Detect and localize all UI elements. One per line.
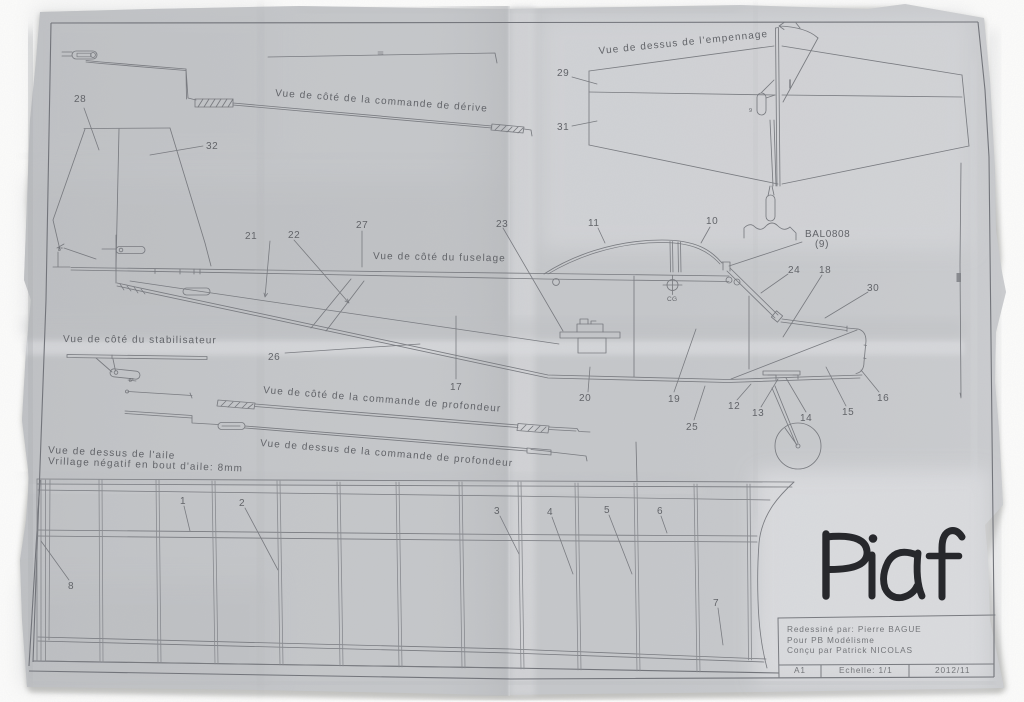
svg-text:29: 29 [557,68,569,79]
svg-text:31: 31 [557,122,569,133]
svg-text:A1: A1 [794,665,806,675]
svg-text:20: 20 [579,393,591,404]
svg-text:18: 18 [819,265,831,276]
svg-text:CG: CG [667,296,677,303]
svg-text:8: 8 [68,581,74,592]
svg-text:25: 25 [686,422,698,433]
svg-text:12: 12 [728,401,740,412]
svg-text:9: 9 [749,108,752,114]
svg-text:Redessiné par: Pierre BAGUE: Redessiné par: Pierre BAGUE [787,624,922,634]
svg-text:26: 26 [268,352,280,363]
svg-text:22: 22 [288,230,300,241]
svg-text:Vue de côté du fuselage: Vue de côté du fuselage [373,251,506,264]
svg-text:2012/11: 2012/11 [935,665,970,675]
svg-text:Pour PB Modélisme: Pour PB Modélisme [787,635,875,645]
svg-text:3: 3 [494,506,500,517]
svg-text:14: 14 [800,413,812,424]
svg-text:1: 1 [180,496,186,507]
svg-text:17: 17 [450,382,462,393]
svg-text:Echelle: 1/1: Echelle: 1/1 [839,665,893,675]
svg-text:11: 11 [588,218,600,229]
svg-text:32: 32 [206,141,218,152]
svg-text:5: 5 [604,505,610,516]
svg-text:4: 4 [547,507,553,518]
svg-text:16: 16 [877,393,889,404]
svg-text:15: 15 [842,407,854,418]
svg-text:28: 28 [74,94,86,105]
svg-text:24: 24 [788,265,800,276]
svg-text:30: 30 [867,283,879,294]
svg-text:21: 21 [245,231,257,242]
svg-text:8°: 8° [58,247,63,253]
svg-text:10: 10 [706,216,718,227]
svg-text:2: 2 [239,498,245,509]
svg-text:13: 13 [752,408,764,419]
svg-text:19: 19 [668,394,680,405]
svg-text:8°: 8° [129,378,134,384]
svg-text:(9): (9) [815,239,829,250]
svg-text:7: 7 [713,598,719,609]
svg-text:27: 27 [356,220,368,231]
svg-text:Conçu par Patrick NICOLAS: Conçu par Patrick NICOLAS [787,645,913,655]
svg-text:6: 6 [657,506,663,517]
svg-text:23: 23 [496,219,508,230]
svg-text:Vue de côté du stabilisateur: Vue de côté du stabilisateur [63,334,217,346]
